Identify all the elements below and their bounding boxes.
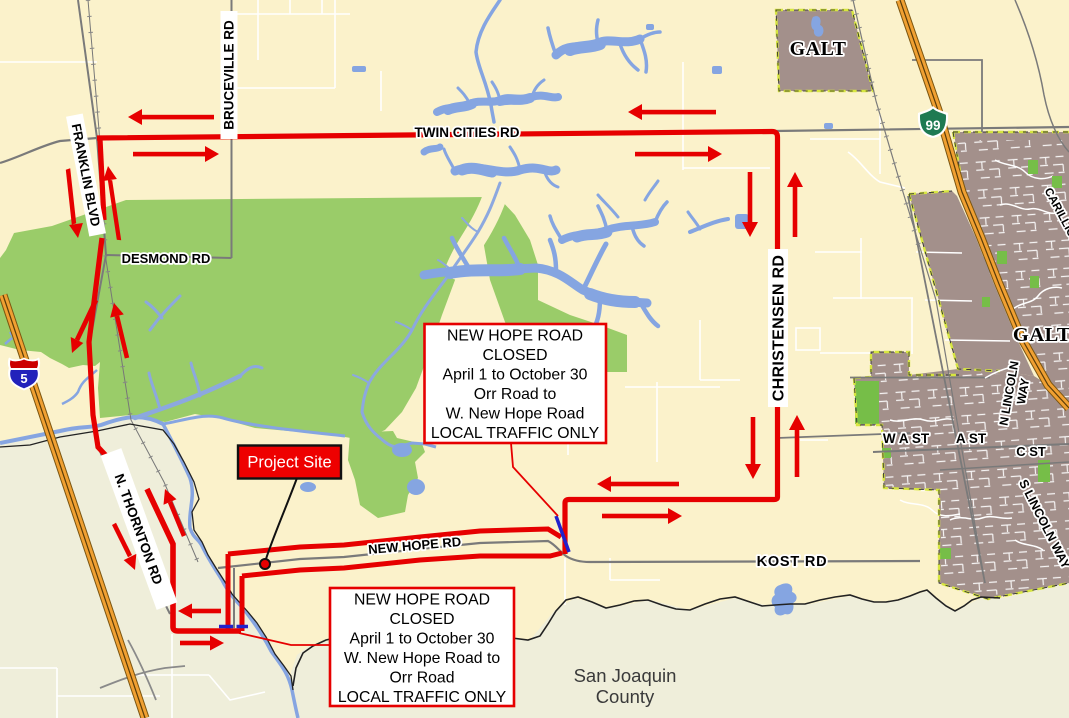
svg-text:DESMOND RD: DESMOND RD	[122, 251, 211, 266]
svg-text:A ST: A ST	[956, 431, 987, 446]
svg-text:KOST RD: KOST RD	[757, 554, 828, 570]
svg-text:W. New Hope Road: W. New Hope Road	[446, 406, 585, 423]
svg-text:LOCAL TRAFFIC ONLY: LOCAL TRAFFIC ONLY	[338, 689, 507, 706]
svg-text:W. New Hope Road to: W. New Hope Road to	[344, 650, 501, 667]
svg-text:BRUCEVILLE RD: BRUCEVILLE RD	[222, 20, 237, 130]
svg-text:TWIN CITIES RD: TWIN CITIES RD	[415, 125, 520, 140]
svg-text:NEW HOPE ROAD: NEW HOPE ROAD	[354, 592, 490, 609]
svg-text:CLOSED: CLOSED	[483, 347, 548, 364]
svg-text:LOCAL TRAFFIC ONLY: LOCAL TRAFFIC ONLY	[431, 425, 600, 442]
svg-text:CLOSED: CLOSED	[390, 611, 455, 628]
svg-text:NEW HOPE ROAD: NEW HOPE ROAD	[447, 328, 583, 345]
svg-text:99: 99	[925, 118, 940, 133]
svg-text:Orr Road to: Orr Road to	[474, 386, 557, 403]
svg-text:April 1 to October 30: April 1 to October 30	[350, 631, 495, 648]
svg-text:April 1 to October 30: April 1 to October 30	[443, 367, 588, 384]
svg-text:C ST: C ST	[1016, 444, 1046, 459]
svg-text:San Joaquin: San Joaquin	[574, 665, 677, 686]
svg-text:GALT: GALT	[790, 38, 847, 60]
svg-text:W A ST: W A ST	[883, 431, 930, 446]
svg-text:County: County	[596, 686, 655, 707]
svg-text:Orr Road: Orr Road	[390, 670, 455, 687]
svg-text:CHRISTENSEN RD: CHRISTENSEN RD	[771, 255, 788, 401]
svg-text:5: 5	[20, 371, 27, 386]
svg-text:Project Site: Project Site	[247, 454, 331, 472]
svg-text:GALT: GALT	[1013, 324, 1069, 346]
